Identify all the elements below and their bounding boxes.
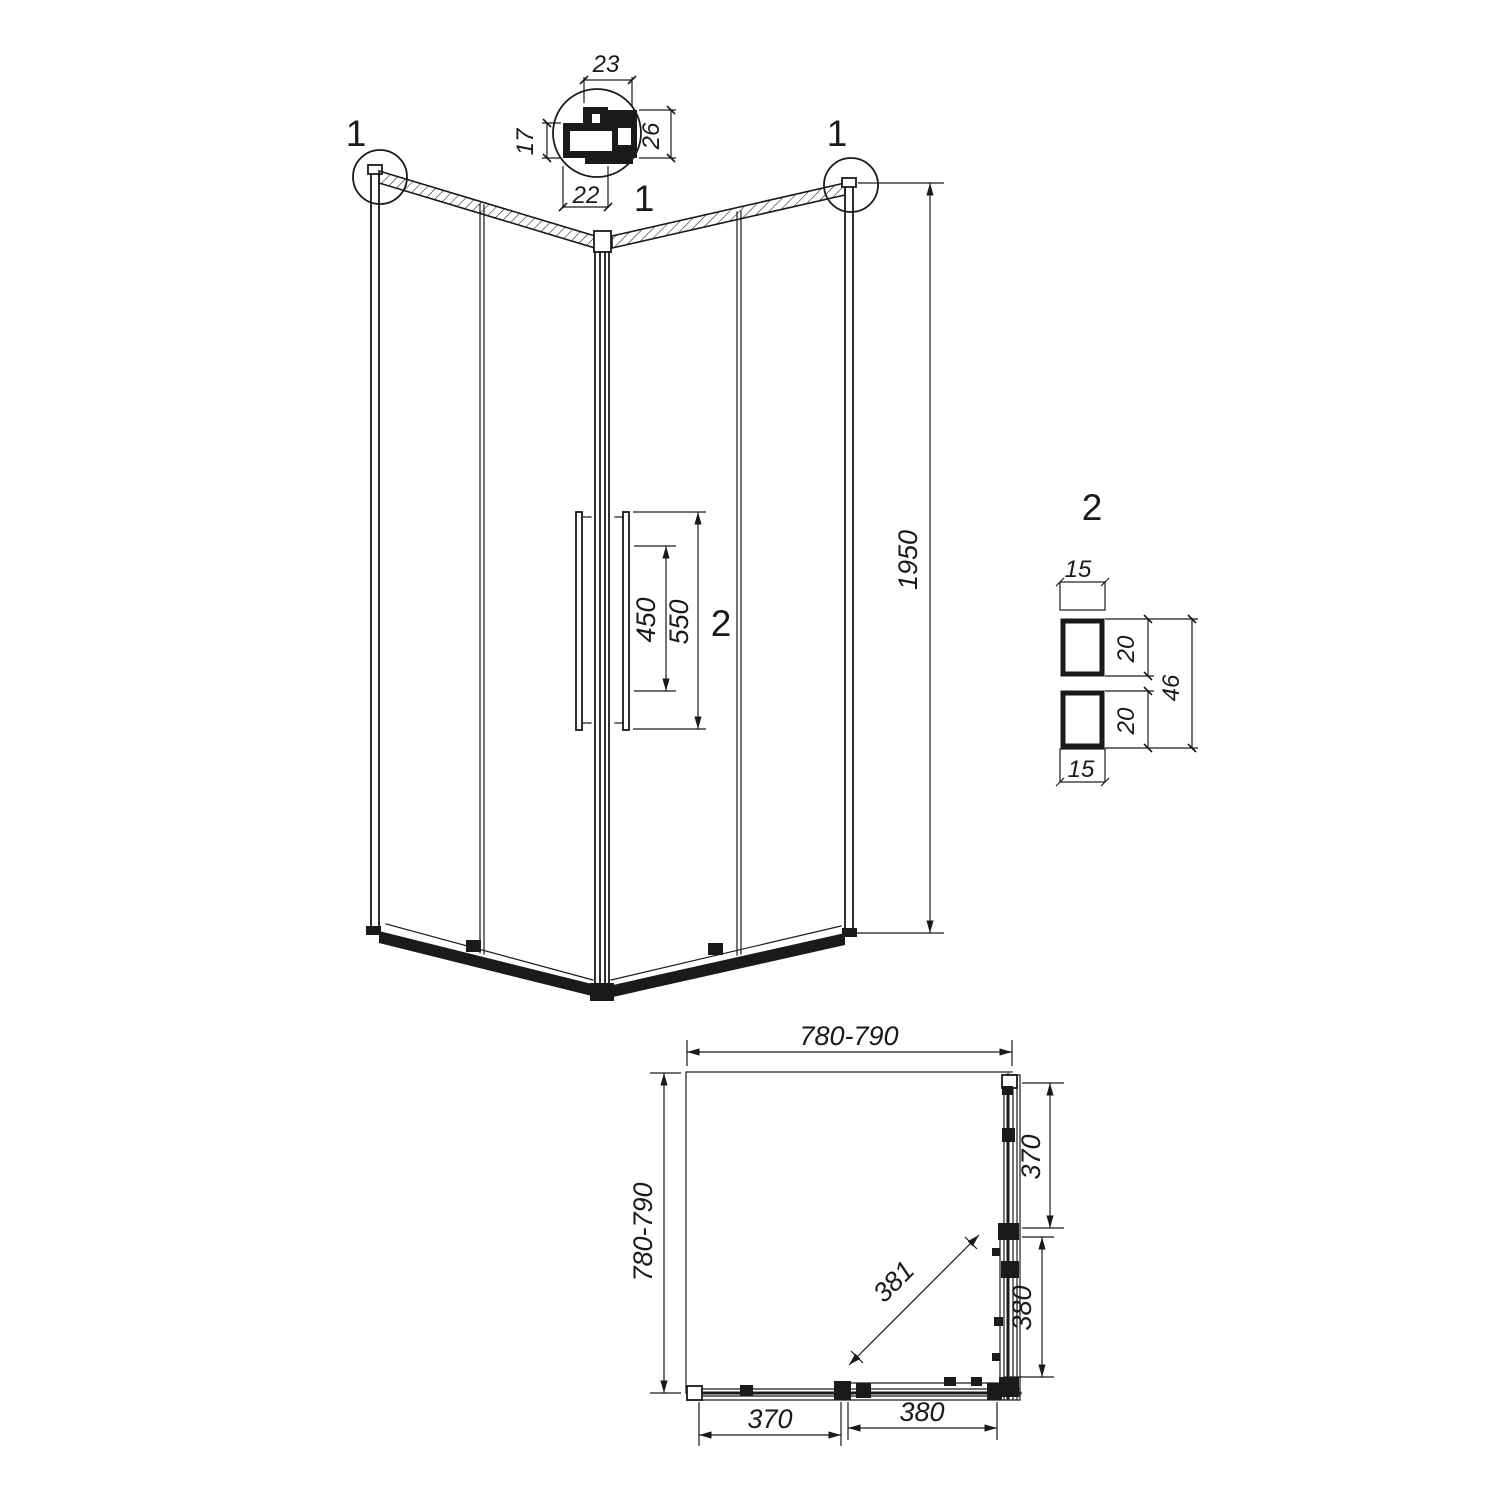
corner-apex-cap: [594, 231, 611, 252]
bracket: [971, 1377, 982, 1386]
right-guide-block: [708, 943, 723, 955]
roller: [834, 1381, 851, 1400]
shower-enclosure-drawing: 23 17 26 22 1 1 1: [0, 0, 1500, 1500]
bracket: [992, 1248, 1000, 1256]
dim-450: 450: [631, 597, 661, 642]
top-extension-box: [1060, 582, 1105, 610]
handle-bar: [576, 512, 582, 730]
profile-bottom-tab: [585, 158, 633, 164]
dim-right-fixed: 370: [1016, 1134, 1046, 1179]
technical-drawing-page: 23 17 26 22 1 1 1: [0, 0, 1500, 1500]
bracket: [740, 1385, 753, 1396]
dim-550: 550: [664, 599, 694, 644]
detail-2-reference: 2: [711, 603, 732, 644]
bracket: [992, 1353, 1000, 1361]
dim-depth: 780-790: [628, 1182, 658, 1281]
dim-right-door: 380: [1007, 1285, 1037, 1330]
roller: [998, 1223, 1019, 1240]
canvas-background: [0, 0, 1500, 1500]
detail-2-label: 2: [1082, 487, 1103, 528]
roller: [1001, 1261, 1019, 1278]
dim-22: 22: [572, 182, 600, 209]
left-guide-block: [466, 940, 481, 952]
dim-46: 46: [1158, 674, 1185, 701]
bracket: [1002, 1128, 1015, 1142]
dim-bottom-fixed: 370: [747, 1404, 792, 1434]
dim-1950: 1950: [893, 530, 923, 590]
bracket: [1002, 1086, 1013, 1095]
dim-15-top: 15: [1065, 556, 1092, 583]
dim-bottom-door: 380: [899, 1397, 944, 1427]
handle-bar: [623, 512, 629, 730]
right-stile-cap: [842, 178, 856, 187]
roller: [856, 1383, 871, 1398]
dim-20-lower: 20: [1113, 707, 1140, 735]
dim-15-bottom: 15: [1068, 756, 1095, 783]
dim-23: 23: [592, 51, 620, 78]
bottom-wall-endcap: [687, 1386, 702, 1400]
callout-label-left: 1: [346, 113, 367, 154]
dim-17: 17: [512, 127, 539, 155]
detail-1-label: 1: [634, 178, 655, 219]
left-stile-foot: [366, 926, 381, 935]
dim-width: 780-790: [799, 1021, 898, 1051]
callout-label-right: 1: [827, 113, 848, 154]
dim-26: 26: [638, 122, 665, 150]
bracket: [944, 1377, 956, 1386]
bottom-corner-foot: [590, 983, 614, 1001]
bracket: [994, 1317, 1003, 1326]
lower-square-profile: [1063, 693, 1102, 746]
corner-roller: [987, 1383, 1002, 1400]
dim-20-upper: 20: [1113, 635, 1140, 663]
upper-square-profile: [1063, 621, 1102, 674]
